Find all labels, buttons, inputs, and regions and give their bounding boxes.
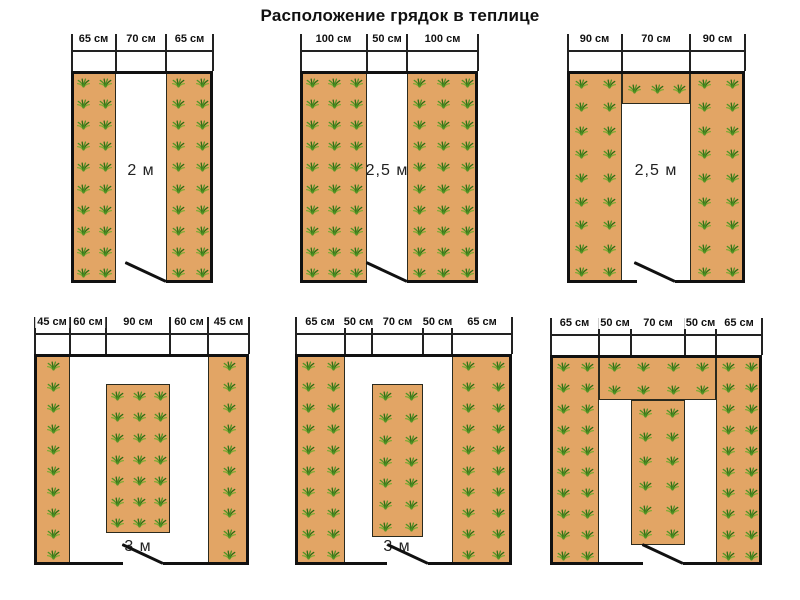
dimension-label: 45 см: [35, 316, 69, 328]
dimension-label: 65 см: [173, 33, 207, 45]
dimension-tick: [689, 34, 691, 71]
dimension-tick: [511, 317, 513, 354]
greenhouse-wall: [550, 355, 762, 565]
dimension-label: 90 см: [121, 316, 155, 328]
aisle-width-label: 2,5 м: [366, 162, 409, 180]
dimension-label: 90 см: [578, 33, 612, 45]
greenhouse-diagram-u-shape-beds-2-5m: 90 см70 см90 см2,5 м: [567, 31, 745, 308]
greenhouse-diagram-three-beds-3m-wide-sides: 65 см50 см70 см50 см65 см3 м: [295, 314, 512, 590]
dimension-label: 50 см: [342, 316, 376, 328]
dimension-line: [300, 50, 478, 52]
dimension-tick: [621, 34, 623, 71]
dimension-line: [71, 50, 213, 52]
dimension-tick: [744, 34, 746, 71]
greenhouse-bed-layouts-figure: Расположение грядок в теплице 65 см70 см…: [0, 0, 800, 600]
greenhouse-diagram-two-side-beds-2-5m: 100 см50 см100 см2,5 м: [300, 31, 478, 308]
dimension-tick: [406, 34, 408, 71]
dimension-label: 60 см: [172, 316, 206, 328]
dimension-tick: [71, 34, 73, 71]
dimension-tick: [207, 317, 209, 354]
dimension-tick: [115, 34, 117, 71]
dimension-label: 70 см: [639, 33, 673, 45]
aisle-width-label: 2 м: [127, 162, 154, 180]
dimension-label: 50 см: [684, 317, 718, 329]
dimension-label: 60 см: [71, 316, 105, 328]
dimension-tick: [300, 34, 302, 71]
dimension-tick: [550, 318, 552, 355]
dimension-label: 65 см: [465, 316, 499, 328]
dimension-tick: [212, 34, 214, 71]
greenhouse-wall: [34, 354, 249, 565]
dimension-line: [567, 50, 745, 52]
dimension-tick: [165, 34, 167, 71]
dimension-label: 65 см: [303, 316, 337, 328]
greenhouse-diagram-two-side-beds-2m: 65 см70 см65 см2 м: [71, 31, 213, 308]
greenhouse-diagram-three-beds-3m-narrow-sides: 45 см60 см90 см60 см45 см3 м: [34, 314, 249, 590]
dimension-tick: [567, 34, 569, 71]
dimension-tick: [248, 317, 250, 354]
dimension-tick: [366, 34, 368, 71]
dimension-tick: [477, 34, 479, 71]
dimension-line: [295, 333, 512, 335]
dimension-label: 70 см: [124, 33, 158, 45]
page-title: Расположение грядок в теплице: [0, 6, 800, 26]
dimension-label: 70 см: [641, 317, 675, 329]
dimension-label: 65 см: [722, 317, 756, 329]
dimension-label: 50 см: [421, 316, 455, 328]
greenhouse-diagram-comb-shape-beds: 65 см50 см70 см50 см65 см: [550, 315, 762, 590]
dimension-label: 45 см: [212, 316, 246, 328]
dimension-label: 65 см: [558, 317, 592, 329]
dimension-label: 65 см: [77, 33, 111, 45]
dimension-label: 50 см: [370, 33, 404, 45]
dimension-line: [34, 333, 249, 335]
aisle-width-label: 2,5 м: [635, 162, 678, 180]
dimension-label: 100 см: [314, 33, 354, 45]
dimension-label: 100 см: [423, 33, 463, 45]
dimension-tick: [169, 317, 171, 354]
dimension-label: 70 см: [381, 316, 415, 328]
dimension-tick: [105, 317, 107, 354]
greenhouse-wall: [295, 354, 512, 565]
dimension-tick: [295, 317, 297, 354]
dimension-label: 90 см: [701, 33, 735, 45]
dimension-label: 50 см: [598, 317, 632, 329]
dimension-line: [550, 334, 762, 336]
dimension-tick: [761, 318, 763, 355]
